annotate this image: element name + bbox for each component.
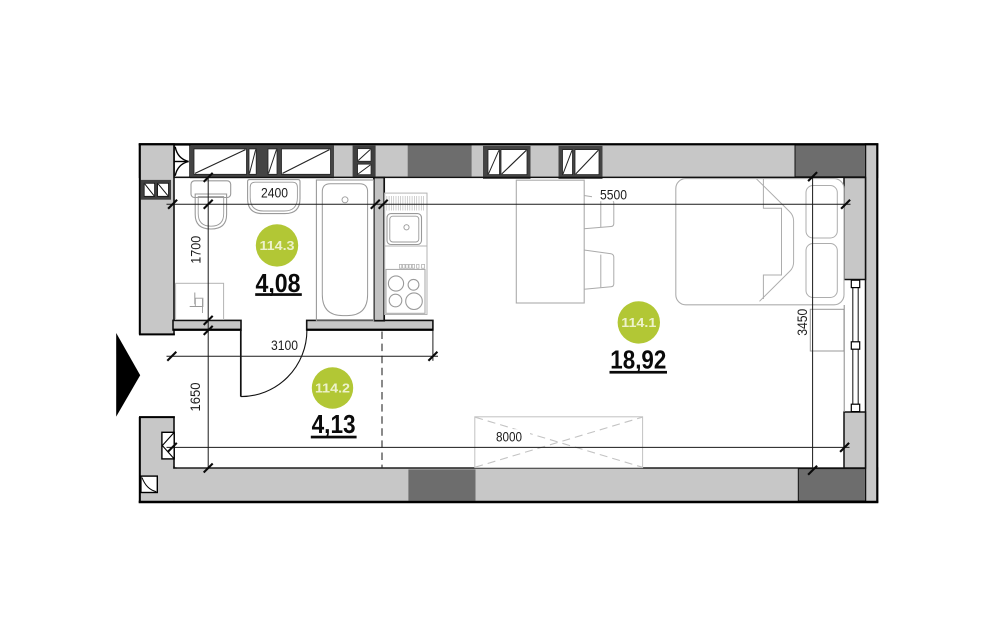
svg-text:3450: 3450 xyxy=(795,309,810,336)
svg-text:8000: 8000 xyxy=(496,430,522,445)
svg-text:1700: 1700 xyxy=(189,236,204,264)
svg-text:4,13: 4,13 xyxy=(312,411,356,439)
svg-text:3100: 3100 xyxy=(271,338,298,353)
svg-text:1650: 1650 xyxy=(188,383,203,412)
svg-text:18,92: 18,92 xyxy=(610,346,666,374)
svg-text:114.3: 114.3 xyxy=(260,238,295,253)
svg-text:114.2: 114.2 xyxy=(315,381,350,396)
svg-text:114.1: 114.1 xyxy=(621,315,656,330)
svg-text:5500: 5500 xyxy=(600,188,627,203)
svg-text:2400: 2400 xyxy=(261,186,288,201)
